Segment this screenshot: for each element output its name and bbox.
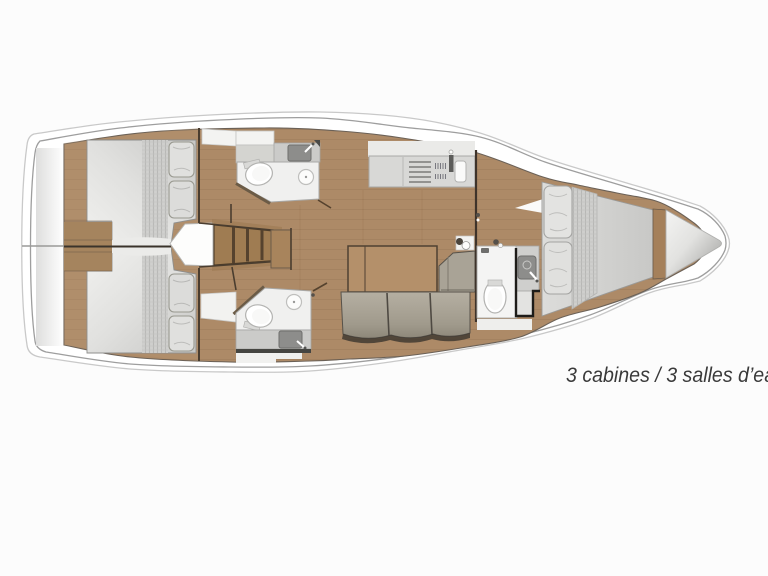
svg-text:3 cabines / 3 salles d’eau: 3 cabines / 3 salles d’eau [566, 364, 768, 387]
